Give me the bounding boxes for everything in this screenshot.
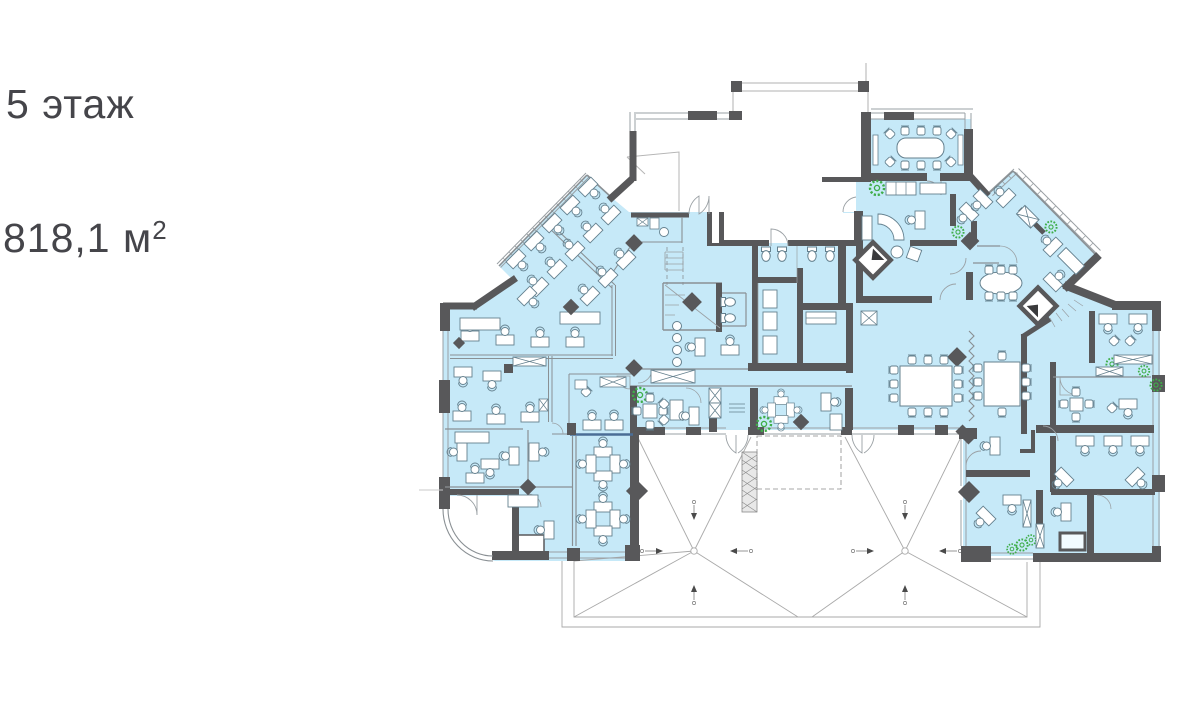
svg-text:818,1 м2: 818,1 м2	[3, 215, 168, 261]
svg-text:5 этаж: 5 этаж	[6, 81, 135, 127]
